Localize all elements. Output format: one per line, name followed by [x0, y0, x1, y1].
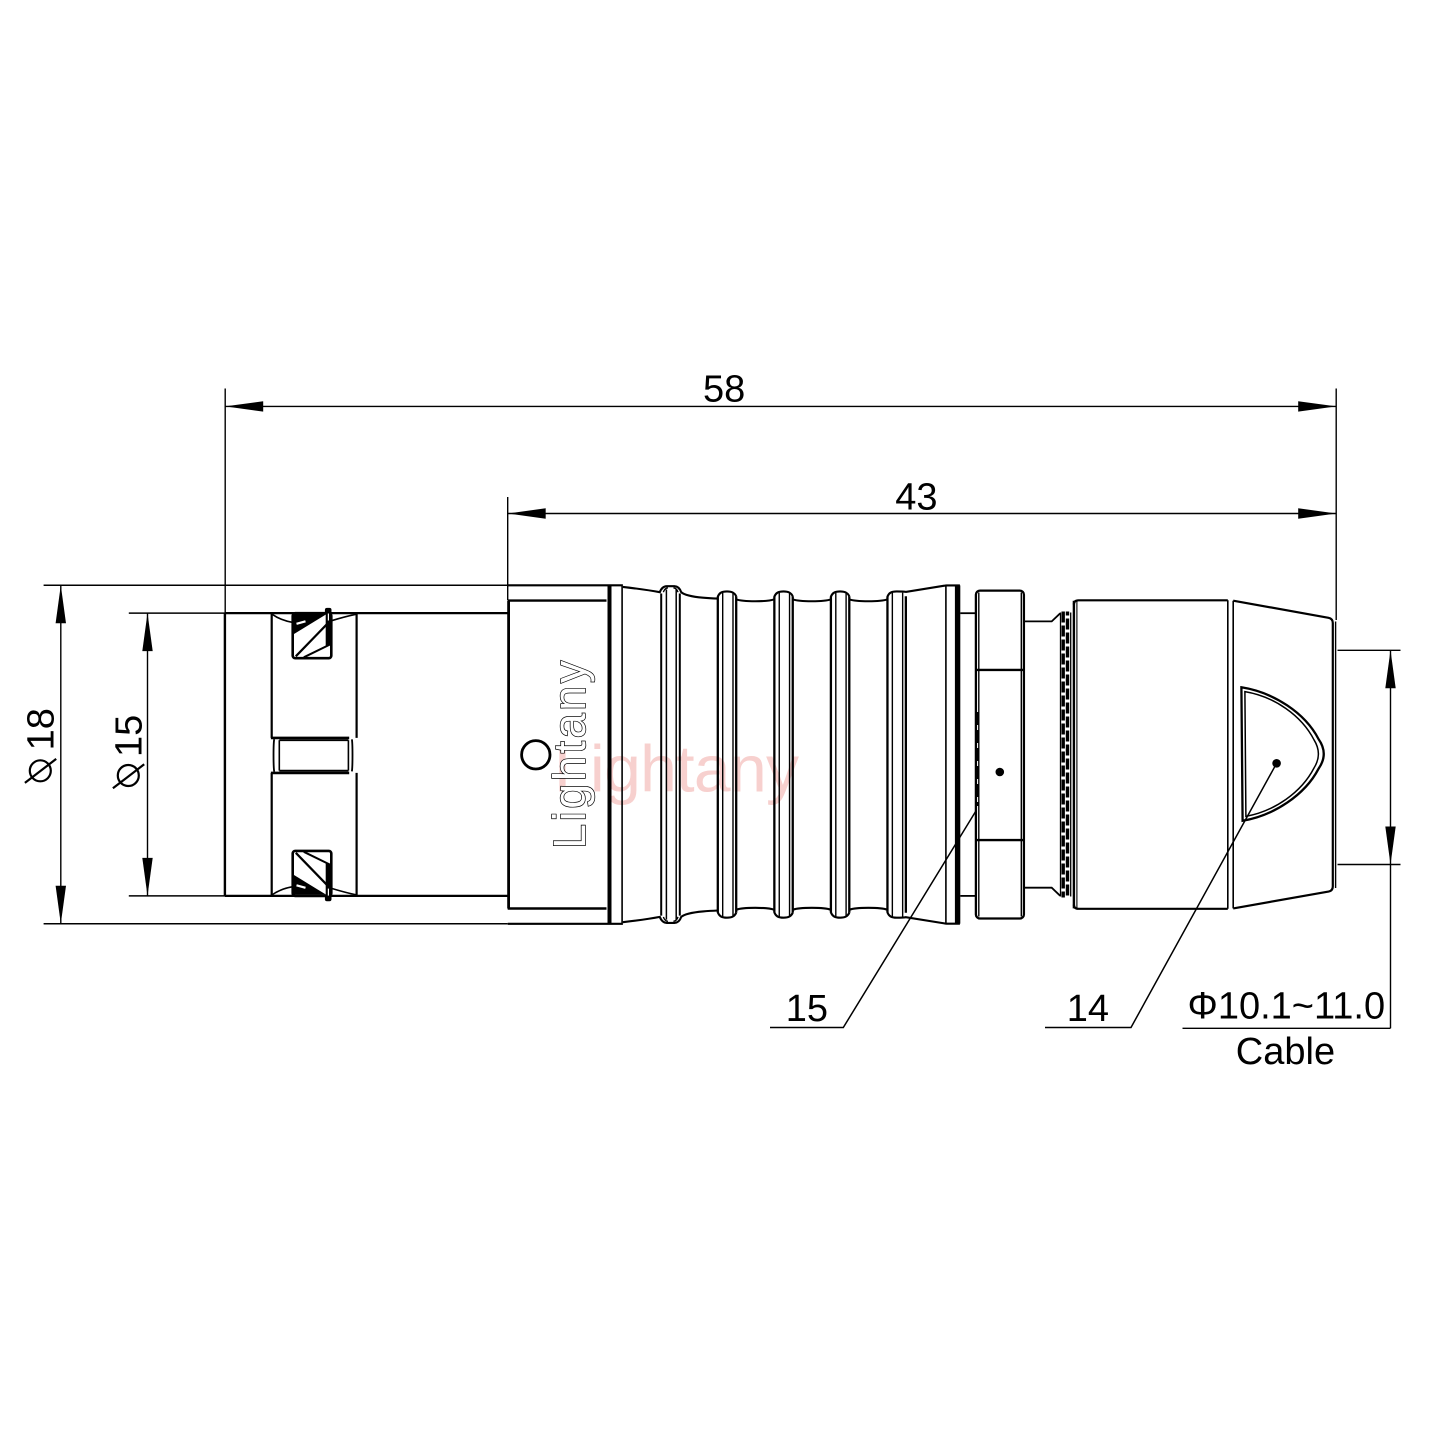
svg-text:Cable: Cable: [1236, 1031, 1335, 1073]
svg-text:Φ10.1~11.0: Φ10.1~11.0: [1188, 985, 1386, 1027]
svg-text:18: 18: [21, 708, 63, 750]
svg-text:43: 43: [895, 477, 937, 519]
svg-text:15: 15: [786, 988, 828, 1030]
svg-text:Lightany: Lightany: [544, 658, 595, 849]
svg-text:15: 15: [109, 715, 151, 757]
svg-text:14: 14: [1067, 988, 1109, 1030]
svg-text:58: 58: [703, 369, 745, 411]
